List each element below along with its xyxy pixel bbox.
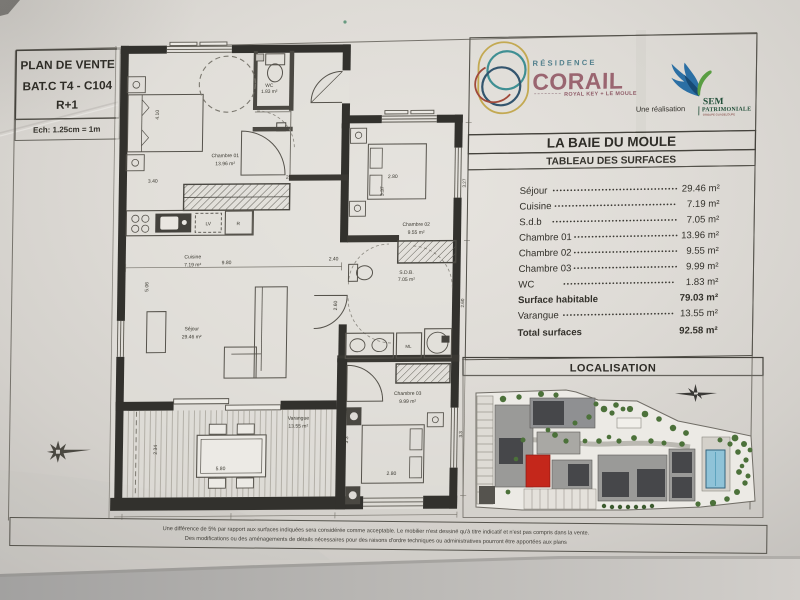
svg-text:5.80: 5.80 [216, 466, 226, 472]
svg-text:9.80: 9.80 [222, 260, 232, 266]
svg-text:9.99 m²: 9.99 m² [686, 261, 719, 272]
svg-text:S.D.B.: S.D.B. [399, 270, 414, 276]
svg-text:13.55 m²: 13.55 m² [680, 308, 719, 320]
svg-text:3.3: 3.3 [344, 436, 350, 443]
svg-text:7.05 m²: 7.05 m² [687, 214, 720, 225]
svg-text:Chambre 02: Chambre 02 [519, 248, 572, 260]
svg-text:Chambre 01: Chambre 01 [519, 232, 572, 244]
svg-text:1.83 m²: 1.83 m² [261, 89, 278, 95]
svg-text:7.05 m²: 7.05 m² [398, 277, 415, 283]
svg-text:S.d.b: S.d.b [519, 217, 542, 228]
svg-text:GROUPE GUADELOUPE: GROUPE GUADELOUPE [703, 112, 736, 116]
svg-text:WC: WC [518, 279, 534, 290]
svg-text:Surface habitable: Surface habitable [518, 294, 598, 306]
svg-text:29.46 m²: 29.46 m² [682, 183, 721, 195]
svg-text:5.06: 5.06 [144, 282, 150, 292]
svg-text:Une réalisation: Une réalisation [636, 104, 685, 114]
svg-text:2.40: 2.40 [329, 256, 339, 262]
svg-text:Séjour: Séjour [184, 326, 199, 332]
svg-text:SEM: SEM [703, 97, 724, 107]
svg-text:3.3: 3.3 [458, 431, 463, 438]
svg-text:R+1: R+1 [56, 98, 79, 112]
svg-text:7.19 m²: 7.19 m² [687, 199, 720, 210]
svg-text:BAT.C T4 - C104: BAT.C T4 - C104 [22, 78, 112, 93]
svg-text:Chambre 03: Chambre 03 [394, 391, 422, 397]
svg-text:ROYAL KEY + LE MOULE: ROYAL KEY + LE MOULE [564, 91, 637, 98]
svg-text:9.99 m²: 9.99 m² [399, 399, 416, 405]
svg-text:Cuisine: Cuisine [519, 201, 551, 212]
svg-text:1.83 m²: 1.83 m² [686, 277, 719, 288]
svg-text:2.33: 2.33 [286, 175, 296, 181]
svg-text:Varangue: Varangue [288, 416, 310, 422]
svg-text:2.80: 2.80 [388, 174, 398, 180]
svg-text:3.40: 3.40 [148, 179, 158, 185]
svg-text:Total surfaces: Total surfaces [518, 327, 582, 339]
svg-text:2.80: 2.80 [386, 471, 396, 477]
svg-text:13.96 m²: 13.96 m² [215, 161, 235, 167]
svg-text:4.10: 4.10 [155, 110, 161, 120]
svg-text:79.03 m²: 79.03 m² [680, 292, 719, 304]
svg-text:13.55 m²: 13.55 m² [288, 424, 308, 430]
svg-text:92.58 m²: 92.58 m² [679, 325, 718, 337]
svg-text:Cuisine: Cuisine [184, 254, 201, 260]
svg-text:LOCALISATION: LOCALISATION [570, 363, 656, 375]
svg-text:2.34: 2.34 [153, 445, 159, 455]
svg-text:LA BAIE DU MOULE: LA BAIE DU MOULE [547, 134, 676, 151]
svg-text:9.55 m²: 9.55 m² [686, 245, 719, 256]
svg-text:3.37: 3.37 [380, 186, 386, 196]
svg-text:Ech: 1.25cm = 1m: Ech: 1.25cm = 1m [33, 125, 101, 135]
svg-text:RÉSIDENCE: RÉSIDENCE [533, 58, 597, 68]
svg-text:29.46 m²: 29.46 m² [182, 334, 202, 340]
svg-text:2.60: 2.60 [460, 298, 465, 307]
svg-text:3.27: 3.27 [462, 178, 467, 187]
svg-text:WC: WC [265, 83, 274, 89]
svg-text:13.96 m²: 13.96 m² [681, 230, 720, 242]
svg-text:Varangue: Varangue [518, 310, 559, 322]
svg-text:TABLEAU DES SURFACES: TABLEAU DES SURFACES [546, 155, 676, 168]
svg-text:9.55 m²: 9.55 m² [408, 230, 425, 236]
svg-text:Chambre 01: Chambre 01 [211, 153, 239, 159]
svg-text:Chambre 03: Chambre 03 [518, 263, 571, 275]
svg-text:Séjour: Séjour [520, 186, 549, 197]
svg-text:2.60: 2.60 [333, 300, 339, 310]
svg-text:PLAN DE VENTE: PLAN DE VENTE [20, 57, 115, 72]
svg-text:Chambre 02: Chambre 02 [402, 222, 430, 228]
svg-text:ML: ML [405, 344, 412, 349]
svg-text:R: R [236, 221, 240, 227]
svg-text:LV: LV [205, 221, 211, 227]
